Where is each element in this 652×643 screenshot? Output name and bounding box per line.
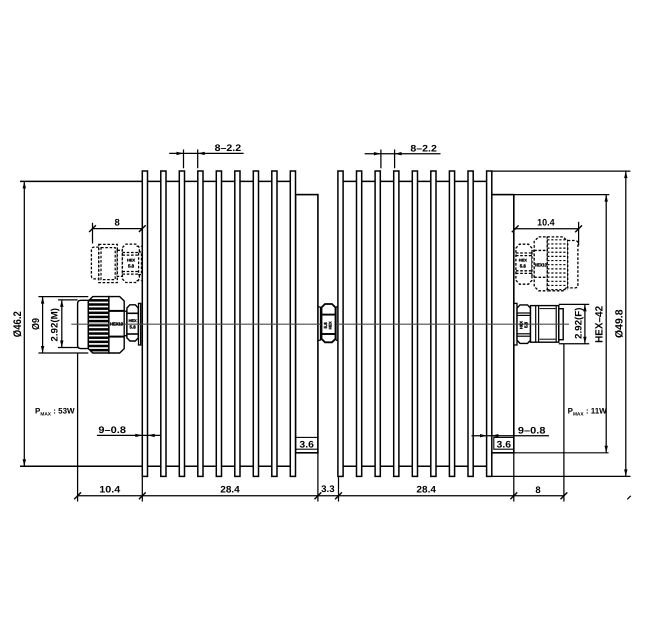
svg-text:28.4: 28.4 bbox=[416, 484, 436, 495]
svg-text:8–2.2: 8–2.2 bbox=[410, 144, 437, 155]
svg-text:5.8: 5.8 bbox=[520, 264, 527, 269]
svg-text:28.4: 28.4 bbox=[220, 484, 240, 495]
svg-text:10.4: 10.4 bbox=[99, 485, 121, 496]
svg-text:HEX: HEX bbox=[127, 259, 135, 263]
svg-text:HEX: HEX bbox=[519, 259, 527, 263]
svg-text:HEX: HEX bbox=[329, 321, 333, 329]
svg-text:HEX10: HEX10 bbox=[535, 262, 547, 267]
svg-text:Ø46.2: Ø46.2 bbox=[12, 311, 24, 337]
svg-text:9–0.8: 9–0.8 bbox=[518, 426, 546, 437]
svg-text:5.8: 5.8 bbox=[323, 322, 328, 329]
svg-text:Ø49.8: Ø49.8 bbox=[614, 309, 626, 338]
svg-text:Ø9: Ø9 bbox=[31, 318, 42, 330]
svg-text:2.92(M): 2.92(M) bbox=[50, 308, 61, 342]
svg-text:2.92(F): 2.92(F) bbox=[574, 307, 585, 339]
svg-text:3.3: 3.3 bbox=[321, 484, 335, 495]
svg-text:10.4: 10.4 bbox=[537, 218, 555, 229]
svg-text:3.6: 3.6 bbox=[299, 439, 314, 450]
svg-text:HEX10: HEX10 bbox=[110, 321, 123, 326]
svg-text:3.6: 3.6 bbox=[497, 439, 512, 450]
svg-text:HEX–42: HEX–42 bbox=[594, 306, 606, 343]
svg-text:5.8: 5.8 bbox=[128, 264, 135, 269]
svg-text:5.8: 5.8 bbox=[524, 321, 529, 328]
svg-text:8: 8 bbox=[535, 485, 540, 496]
svg-text:8–2.2: 8–2.2 bbox=[215, 143, 242, 154]
svg-text:9–0.8: 9–0.8 bbox=[98, 425, 126, 436]
svg-text:HEX: HEX bbox=[129, 319, 137, 323]
svg-text:5.8: 5.8 bbox=[130, 324, 137, 329]
svg-text:8: 8 bbox=[115, 217, 120, 228]
